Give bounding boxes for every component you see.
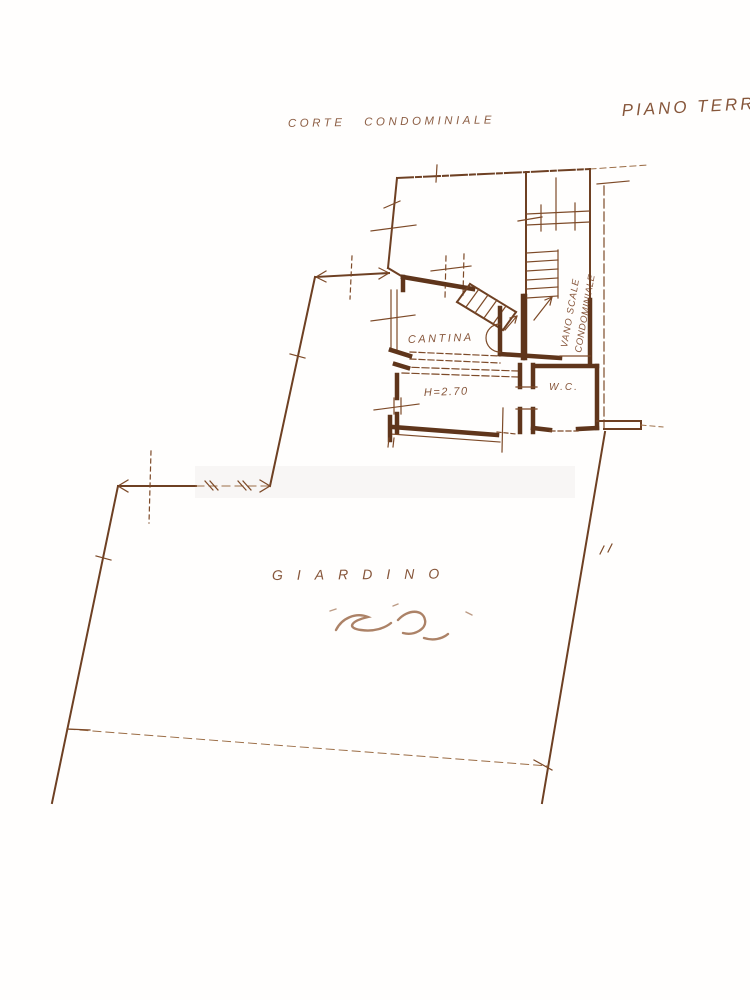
cantina-room <box>371 277 523 363</box>
main-room <box>374 364 537 452</box>
cantina-label: CANTINA <box>408 332 474 346</box>
floor-title: PIANO TERRA <box>621 93 750 120</box>
scanned-floorplan-page: CORTE CONDOMINIALE PIANO TERRA <box>0 0 750 1000</box>
courtyard-boundary <box>371 165 648 428</box>
courtyard-title: CORTE CONDOMINIALE <box>288 114 495 130</box>
measurement-ticks <box>316 256 389 299</box>
wc-room <box>533 366 663 431</box>
ceiling-height-label: H=2.70 <box>424 385 469 399</box>
wc-label: W.C. <box>549 382 579 393</box>
garden-label: GIARDINO <box>272 565 453 583</box>
scan-shadow <box>195 466 575 498</box>
signature-scribble <box>330 604 472 639</box>
floorplan-drawing: CORTE CONDOMINIALE PIANO TERRA <box>0 0 750 1000</box>
